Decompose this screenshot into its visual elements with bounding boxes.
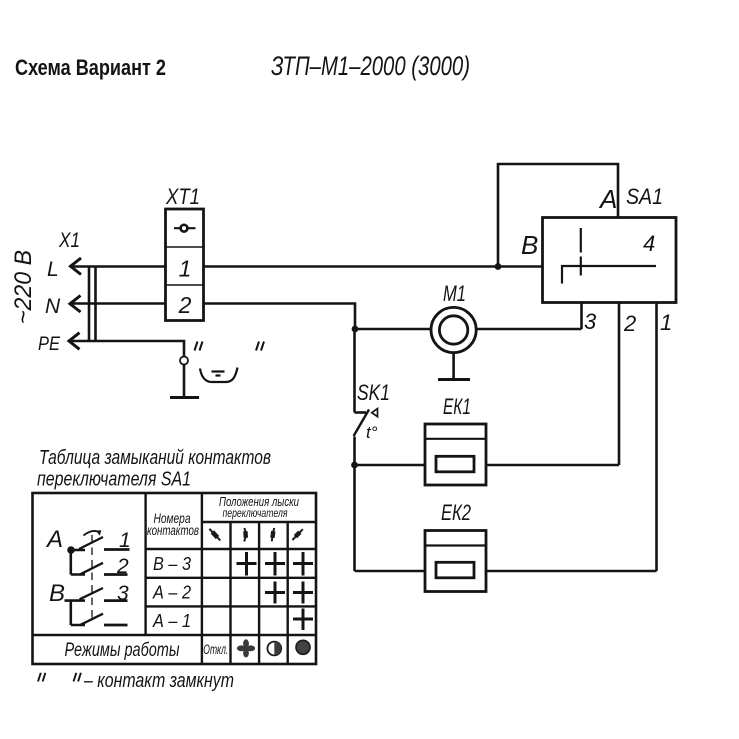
svg-text:t°: t°	[366, 423, 378, 442]
svg-text:3: 3	[117, 582, 129, 605]
svg-text:X1: X1	[58, 229, 80, 252]
svg-text:1: 1	[179, 256, 192, 282]
svg-text:B: B	[49, 580, 65, 607]
svg-text:A: A	[598, 184, 617, 214]
svg-text:N: N	[45, 295, 61, 318]
svg-text:SK1: SK1	[357, 380, 390, 405]
svg-text:XT1: XT1	[165, 184, 200, 209]
svg-text:ЗТП–М1–2000 (3000): ЗТП–М1–2000 (3000)	[271, 51, 470, 81]
svg-text:Режимы работы: Режимы работы	[65, 640, 180, 661]
svg-text:Откл.: Откл.	[203, 642, 228, 657]
svg-text:4: 4	[643, 231, 655, 256]
svg-text:А – 1: А – 1	[152, 611, 191, 631]
svg-text:М1: М1	[443, 281, 466, 306]
svg-text:PE: PE	[38, 334, 60, 355]
svg-text:3: 3	[584, 309, 597, 334]
svg-text:1: 1	[660, 310, 672, 335]
svg-text:2: 2	[116, 555, 129, 578]
svg-text:A: A	[45, 526, 63, 553]
svg-text:ЕК2: ЕК2	[441, 500, 471, 525]
svg-text:– контакт замкнут: – контакт замкнут	[83, 670, 234, 692]
svg-text:SA1: SA1	[626, 184, 663, 209]
svg-text:2: 2	[178, 292, 192, 318]
svg-text:Положения лыски: Положения лыски	[219, 494, 299, 509]
svg-text:контактов: контактов	[147, 523, 199, 538]
svg-text:ЕК1: ЕК1	[443, 394, 471, 419]
svg-text:1: 1	[119, 529, 131, 552]
svg-text:переключателя SA1: переключателя SA1	[37, 469, 191, 491]
svg-text:L: L	[47, 258, 59, 281]
svg-text:B: B	[521, 230, 538, 260]
svg-text:переключателя: переключателя	[223, 508, 288, 520]
svg-text:Таблица замыканий контактов: Таблица замыканий контактов	[39, 447, 271, 469]
svg-text:~220 В: ~220 В	[10, 250, 37, 324]
svg-text:2: 2	[623, 311, 636, 336]
svg-text:А – 2: А – 2	[152, 583, 191, 603]
svg-text:Схема Вариант 2: Схема Вариант 2	[15, 55, 166, 80]
svg-text:В – 3: В – 3	[153, 554, 191, 574]
